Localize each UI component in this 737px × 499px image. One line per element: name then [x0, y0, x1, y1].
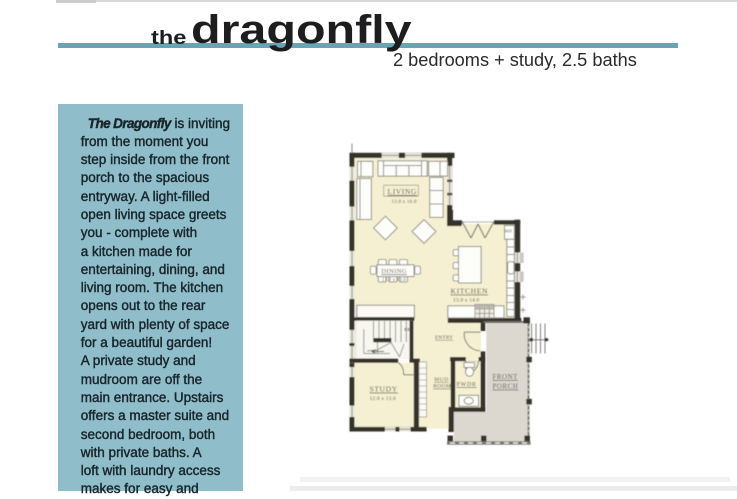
svg-text:PWDR: PWDR — [457, 382, 477, 388]
svg-text:UP: UP — [404, 327, 410, 332]
svg-text:ROOM: ROOM — [433, 384, 451, 390]
svg-text:FRONT: FRONT — [493, 373, 519, 381]
svg-text:KITCHEN: KITCHEN — [451, 287, 489, 296]
svg-text:11.0 x 13.0: 11.0 x 13.0 — [382, 278, 406, 283]
svg-text:PORCH: PORCH — [493, 383, 519, 391]
svg-text:12.0 x 13.0: 12.0 x 13.0 — [370, 396, 397, 402]
svg-text:REF: REF — [505, 230, 512, 234]
svg-text:STUDY: STUDY — [370, 385, 398, 394]
svg-text:13.0 x 16.0: 13.0 x 16.0 — [392, 199, 417, 205]
svg-text:ENTRY: ENTRY — [435, 335, 453, 341]
svg-text:LIVING: LIVING — [388, 187, 417, 196]
svg-text:MUD: MUD — [434, 377, 449, 383]
svg-text:DINING: DINING — [381, 268, 407, 275]
svg-text:13.0 x 14.0: 13.0 x 14.0 — [453, 298, 480, 304]
